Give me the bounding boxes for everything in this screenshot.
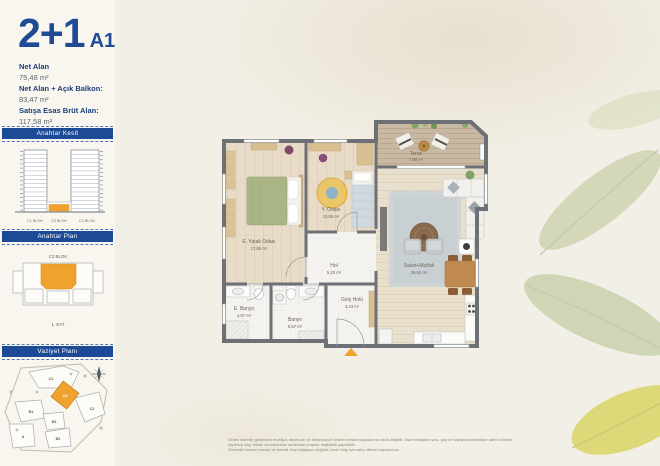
- site-label: C1: [49, 377, 54, 381]
- leaf-decoration: [480, 80, 660, 466]
- divider: [2, 344, 113, 345]
- room-label: Giriş Holü: [341, 297, 363, 303]
- block-label: C3 BLOK: [51, 219, 68, 223]
- tower-c1-icon: [22, 150, 48, 212]
- room-area: 4,97 m²: [237, 313, 252, 318]
- pouf-icon: [285, 146, 294, 155]
- page-title: 2+1 A1: [18, 10, 115, 57]
- room-area: 10,55 m²: [323, 214, 340, 219]
- site-label: B2: [56, 437, 61, 441]
- site-label: B3: [52, 420, 57, 424]
- kids-wardrobe-icon: [357, 143, 373, 165]
- floor-plan: Teras 7,99 m² Y. Odası 10,55 m² E. Yatak…: [219, 119, 499, 361]
- terrace-table-icon: [419, 141, 429, 151]
- stat-label: Net Alan: [19, 61, 113, 72]
- disclaimer-text: Örnek dairede gösterilen mobilya, aksesu…: [228, 437, 528, 452]
- desk-icon: [309, 143, 341, 151]
- section-header-vaziyet: Vaziyet Planı: [2, 346, 113, 357]
- divider: [2, 359, 113, 360]
- room-label: E. Banyo: [234, 306, 255, 312]
- room-area: 17,85 m²: [251, 246, 268, 251]
- section-header-kesit: Anahtar Kesit: [2, 128, 113, 139]
- disclaimer-line: Örnek dairede gösterilen mobilya, aksesu…: [228, 437, 528, 447]
- highlighted-unit: [41, 264, 76, 289]
- disclaimer-line: Görseller tanıtım amaçlı ve temsili olup…: [228, 447, 528, 452]
- section-header-plan: Anahtar Plan: [2, 231, 113, 242]
- room-label: Banyo: [288, 317, 302, 323]
- room-area: 26,92 m²: [411, 270, 428, 275]
- highlighted-floor: [49, 205, 69, 212]
- unit-type-title: 2+1: [18, 10, 85, 57]
- watercolor-wash-bottom: [120, 380, 380, 466]
- area-stats: Net Alan 75,48 m² Net Alan + Açık Balkon…: [19, 61, 113, 127]
- round-rug-icon: [317, 178, 347, 208]
- site-label: B1: [29, 410, 34, 414]
- key-section-diagram: C1 BLOK C3 BLOK C2 BLOK: [1, 146, 114, 228]
- block-label: C2 BLOK: [79, 219, 96, 223]
- single-bed-icon: [352, 171, 373, 227]
- room-area: 7,99 m²: [409, 157, 424, 162]
- room-label: Salon+Mutfak: [404, 263, 435, 269]
- stat-value: 75,48 m²: [19, 72, 113, 83]
- tv-unit-icon: [380, 207, 387, 251]
- key-plan-floor-label: 1. KAT: [51, 322, 64, 327]
- key-plan-diagram: C3 BLOK 1. KAT: [1, 248, 114, 332]
- site-plan-diagram: C1 C3 C2 B1 B3 B2 A: [1, 362, 114, 454]
- stove-icon: [459, 239, 474, 254]
- room-label: E. Yatak Odası: [242, 239, 275, 245]
- room-label: Hol: [330, 263, 338, 269]
- divider: [2, 141, 113, 142]
- site-block-c1: [29, 366, 79, 388]
- plant-icon: [466, 171, 475, 180]
- divider: [2, 229, 113, 230]
- key-plan-block-label: C3 BLOK: [49, 254, 68, 259]
- washer-icon: [273, 291, 286, 304]
- left-info-panel: 2+1 A1 Net Alan 75,48 m² Net Alan + Açık…: [0, 0, 115, 466]
- divider: [2, 126, 113, 127]
- brochure-page: 2+1 A1 Net Alan 75,48 m² Net Alan + Açık…: [0, 0, 660, 466]
- stat-label: Net Alan + Açık Balkon:: [19, 83, 113, 94]
- compass-icon: [92, 366, 106, 382]
- unit-variant-label: A1: [90, 30, 116, 53]
- stat-value: 83,47 m²: [19, 94, 113, 105]
- stat-label: Satışa Esas Brüt Alan:: [19, 105, 113, 116]
- entrance-arrow-icon: [344, 348, 358, 356]
- site-label: A: [22, 435, 25, 439]
- room-area: 4,43 m²: [345, 304, 360, 309]
- room-label: Y. Odası: [322, 207, 341, 213]
- nightstand-icon: [345, 171, 352, 179]
- room-area: 5,57 m²: [288, 324, 303, 329]
- site-label: C2: [90, 407, 95, 411]
- site-label: C3: [63, 394, 68, 398]
- tower-c2-icon: [71, 150, 102, 212]
- double-bed-icon: [247, 175, 303, 227]
- desk-chair-icon: [319, 154, 327, 162]
- block-label: C1 BLOK: [27, 219, 44, 223]
- room-area: 5,20 m²: [327, 270, 342, 275]
- hall-floor: [306, 232, 376, 284]
- divider: [2, 244, 113, 245]
- dresser-icon: [251, 143, 277, 150]
- entry-hall-floor: [326, 284, 376, 346]
